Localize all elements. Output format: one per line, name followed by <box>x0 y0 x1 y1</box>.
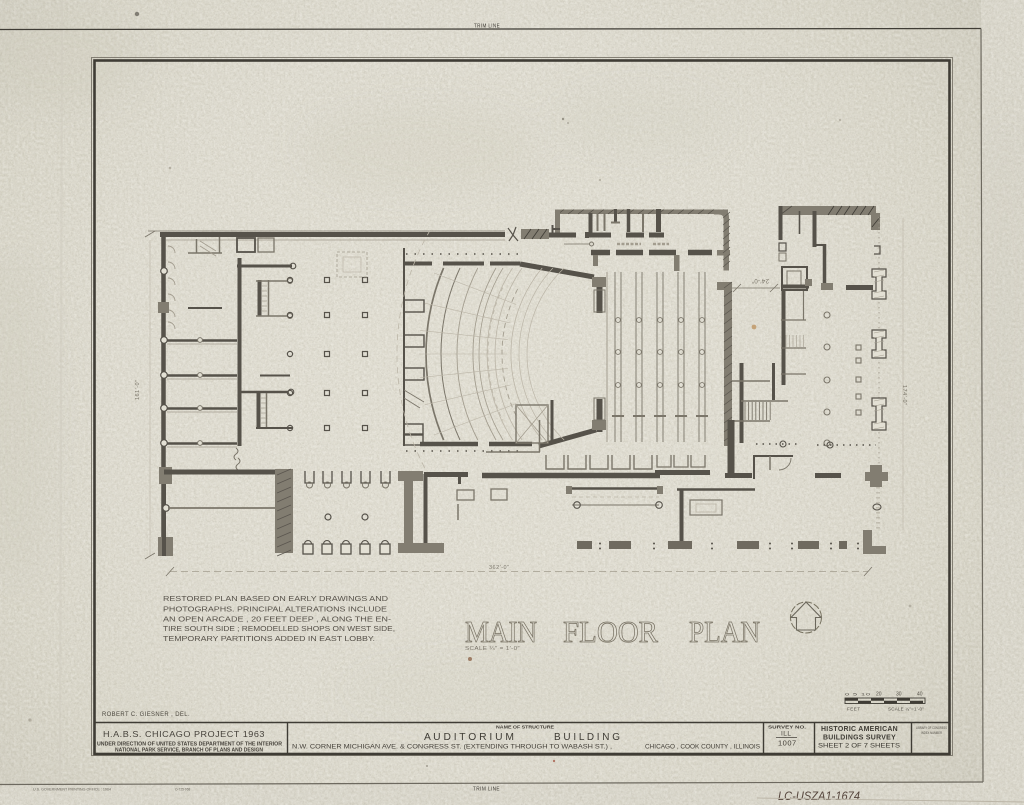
svg-text:30: 30 <box>896 692 902 698</box>
svg-text:BUILDINGS SURVEY: BUILDINGS SURVEY <box>823 733 896 742</box>
svg-text:H.A.B.S. CHICAGO PROJECT: H.A.B.S. CHICAGO PROJECT 1963 <box>103 729 265 739</box>
svg-text:362′-0″: 362′-0″ <box>489 565 510 571</box>
svg-text:FLOOR: FLOOR <box>563 614 658 649</box>
svg-text:TRIM LINE: TRIM LINE <box>473 787 500 793</box>
svg-text:CHICAGO , COOK COUNTY , ILLI: CHICAGO , COOK COUNTY , ILLINOIS <box>645 744 760 751</box>
svg-text:LC-USZA1-1674: LC-USZA1-1674 <box>778 791 860 803</box>
svg-text:TEMPORARY PARTITIONS ADDED: TEMPORARY PARTITIONS ADDED IN EAST LOBBY… <box>163 634 375 643</box>
svg-text:PLAN: PLAN <box>689 614 760 649</box>
svg-text:1007: 1007 <box>778 739 797 748</box>
svg-text:LIBRARY OF CONGRESS: LIBRARY OF CONGRESS <box>916 726 948 730</box>
svg-text:TIRE SOUTH SIDE ; REMODEL: TIRE SOUTH SIDE ; REMODELLED SHOPS ON WE… <box>163 624 395 633</box>
svg-text:ROBERT C. GIESNER , DEL.: ROBERT C. GIESNER , DEL. <box>102 712 190 718</box>
svg-text:ILL: ILL <box>781 731 792 738</box>
svg-text:AN OPEN ARCADE , 20 FEET: AN OPEN ARCADE , 20 FEET DEEP , ALONG TH… <box>163 615 392 624</box>
svg-text:NAME OF STRUCTURE: NAME OF STRUCTURE <box>496 725 555 731</box>
svg-text:PHOTOGRAPHS. PRINCIPAL ALTE: PHOTOGRAPHS. PRINCIPAL ALTERATIONS INCLU… <box>163 605 387 614</box>
svg-text:TRIM LINE: TRIM LINE <box>474 24 500 30</box>
svg-text:RESTORED PLAN BASED ON EAR: RESTORED PLAN BASED ON EARLY DRAWINGS AN… <box>163 594 388 603</box>
svg-text:FEET: FEET <box>847 707 861 712</box>
svg-text:U.S. GOVERNMENT PRINTING OFFIC: U.S. GOVERNMENT PRINTING OFFICE : 1964 <box>33 788 111 792</box>
svg-text:SCALE ¼″ = 1′-0″: SCALE ¼″ = 1′-0″ <box>465 646 520 652</box>
svg-text:0 5 10: 0 5 10 <box>845 692 871 697</box>
svg-text:MAIN: MAIN <box>465 614 537 649</box>
svg-text:161′-0″: 161′-0″ <box>135 379 141 400</box>
svg-text:B U I L D I N G: B U I L D I N G <box>554 731 620 743</box>
svg-text:NATIONAL PARK SERVICE, BRANCH: NATIONAL PARK SERVICE, BRANCH OF PLANS A… <box>115 748 263 754</box>
svg-text:24′-0″: 24′-0″ <box>751 277 769 284</box>
svg-text:174′-0″: 174′-0″ <box>901 385 907 406</box>
svg-text:40: 40 <box>917 692 923 698</box>
svg-text:SHEET 2 OF 7 SHEETS: SHEET 2 OF 7 SHEETS <box>818 744 900 750</box>
svg-text:A U D I T O R I U M: A U D I T O R I U M <box>424 731 514 743</box>
svg-text:INDEX NUMBER: INDEX NUMBER <box>921 731 942 735</box>
svg-text:N.W. CORNER MICHIGAN AVE. &: N.W. CORNER MICHIGAN AVE. & CONGRESS ST.… <box>292 744 612 751</box>
svg-text:O-725-968: O-725-968 <box>175 788 190 792</box>
svg-text:20: 20 <box>876 692 882 698</box>
svg-text:SCALE ¼″=1′-0″: SCALE ¼″=1′-0″ <box>888 707 924 712</box>
